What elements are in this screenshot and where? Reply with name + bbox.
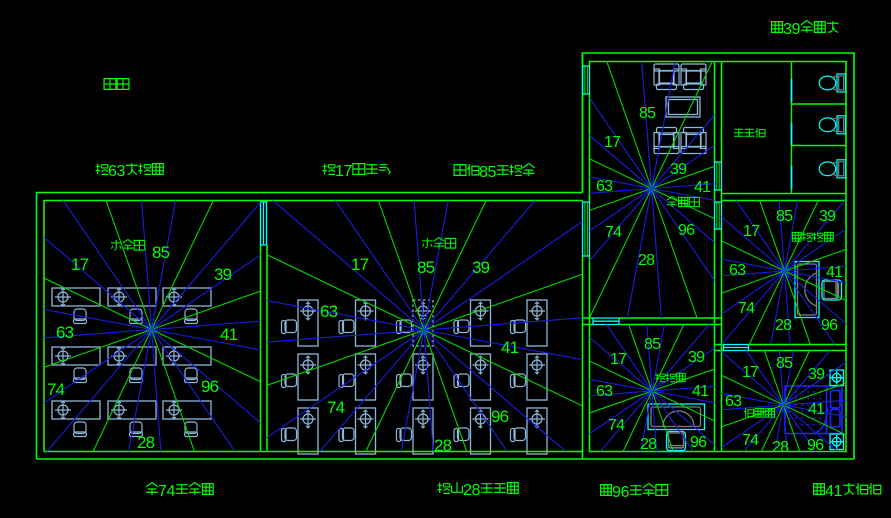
svg-text:28: 28 <box>640 436 657 453</box>
svg-text:85: 85 <box>639 105 656 122</box>
svg-text:39: 39 <box>783 20 800 38</box>
svg-text:28: 28 <box>772 439 789 456</box>
svg-text:74: 74 <box>742 432 759 449</box>
svg-text:96: 96 <box>678 222 695 239</box>
svg-text:39: 39 <box>808 366 825 383</box>
svg-text:17: 17 <box>742 364 759 381</box>
svg-text:63: 63 <box>596 178 613 195</box>
svg-text:85: 85 <box>644 336 661 353</box>
svg-text:85: 85 <box>776 355 793 372</box>
svg-text:28: 28 <box>463 481 480 499</box>
svg-text:74: 74 <box>47 380 65 399</box>
svg-text:96: 96 <box>612 483 629 501</box>
svg-text:39: 39 <box>214 265 232 284</box>
svg-text:96: 96 <box>491 407 509 426</box>
svg-text:85: 85 <box>479 163 496 181</box>
svg-text:39: 39 <box>688 349 705 366</box>
svg-text:41: 41 <box>220 325 238 344</box>
svg-text:63: 63 <box>596 383 613 400</box>
svg-text:41: 41 <box>694 179 711 196</box>
svg-text:41: 41 <box>501 338 519 357</box>
svg-text:74: 74 <box>605 224 622 241</box>
svg-text:41: 41 <box>825 482 842 500</box>
svg-text:85: 85 <box>417 258 435 277</box>
svg-text:28: 28 <box>434 436 452 455</box>
svg-text:39: 39 <box>472 258 490 277</box>
svg-text:28: 28 <box>137 433 155 452</box>
svg-text:17: 17 <box>351 255 369 274</box>
svg-text:41: 41 <box>826 264 843 281</box>
svg-text:74: 74 <box>738 300 755 317</box>
svg-text:28: 28 <box>775 317 792 334</box>
svg-text:96: 96 <box>821 317 838 334</box>
svg-text:39: 39 <box>819 208 836 225</box>
svg-text:63: 63 <box>725 393 742 410</box>
svg-text:63: 63 <box>320 302 338 321</box>
svg-text:39: 39 <box>670 161 687 178</box>
svg-text:17: 17 <box>71 255 89 274</box>
svg-text:96: 96 <box>807 437 824 454</box>
svg-text:17: 17 <box>604 134 621 151</box>
svg-text:96: 96 <box>201 377 219 396</box>
svg-text:74: 74 <box>608 417 625 434</box>
svg-text:17: 17 <box>610 351 627 368</box>
svg-text:28: 28 <box>638 252 655 269</box>
svg-text:17: 17 <box>743 223 760 240</box>
svg-text:74: 74 <box>327 398 345 417</box>
svg-text:85: 85 <box>152 243 170 262</box>
svg-text:17: 17 <box>335 162 352 180</box>
svg-text:63: 63 <box>729 262 746 279</box>
svg-text:63: 63 <box>108 162 125 180</box>
svg-text:41: 41 <box>692 383 709 400</box>
svg-text:41: 41 <box>808 401 825 418</box>
svg-text:85: 85 <box>776 208 793 225</box>
svg-text:74: 74 <box>158 482 175 500</box>
svg-text:63: 63 <box>56 323 74 342</box>
svg-text:96: 96 <box>690 434 707 451</box>
